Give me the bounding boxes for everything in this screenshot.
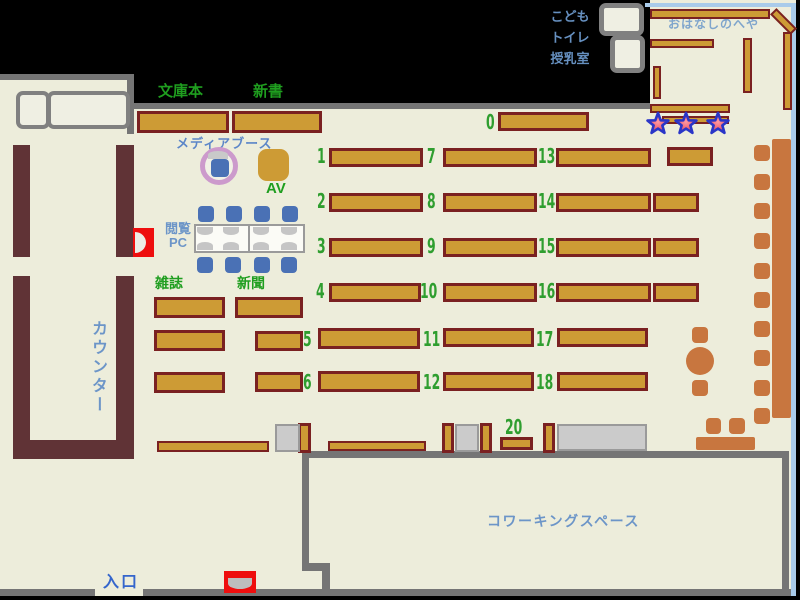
counter-right-upper: [116, 145, 134, 257]
shelf-number-17: 17: [536, 329, 553, 349]
bookshelf-17: [557, 328, 648, 347]
end-shelf: [543, 423, 555, 453]
pc-monitor: [223, 242, 239, 250]
bookshelf-11: [443, 328, 534, 347]
shelf-number-13: 13: [538, 146, 555, 166]
bookshelf-14: [556, 193, 651, 212]
study-table: [275, 424, 300, 452]
bookshelf-6: [318, 371, 420, 392]
pc-chair: [198, 206, 214, 222]
newspapers-label: 新聞: [237, 276, 265, 291]
bookshelf-13: [556, 148, 651, 167]
wall-seat: [754, 145, 770, 161]
bookshelf-16b: [653, 283, 699, 302]
shelf-number-20: 20: [505, 417, 522, 437]
wall-seat: [754, 292, 770, 308]
study-table: [455, 424, 479, 452]
newspaper-shelf: [235, 297, 303, 318]
shelf-number-2: 2: [317, 191, 326, 211]
wall-seat: [754, 203, 770, 219]
shelf-number-6: 6: [303, 372, 312, 392]
bookshelf-10: [443, 283, 537, 302]
magazine-shelf: [154, 372, 225, 393]
library-floor-map: こども トイレ 授乳室 カウンター 文庫本 新書 メディアブース AV 閲覧 P…: [0, 0, 800, 600]
shelf-number-16: 16: [538, 281, 555, 301]
pc-monitor: [281, 227, 297, 235]
bookshelf-9: [443, 238, 537, 257]
counter-label: カウンター: [85, 320, 109, 415]
round-table: [686, 347, 714, 375]
bookshelf-12: [443, 372, 534, 391]
round-table-seat: [692, 380, 708, 396]
bookshelf-4: [329, 283, 421, 302]
bookshelf-20: [500, 437, 533, 450]
coworking-label: コワーキングスペース: [487, 511, 640, 531]
bookshelf-1: [329, 148, 423, 167]
book-return-slot: [133, 228, 154, 257]
service-desk-right: [47, 91, 130, 129]
browsing-pc-line1: 閲覧: [163, 222, 193, 236]
wall-seat: [754, 380, 770, 396]
gate-sensor-window: [228, 578, 252, 589]
wall-seat: [754, 174, 770, 190]
media-booth-chair: [211, 159, 229, 177]
pc-table-divider: [248, 226, 250, 251]
shelf-number-12: 12: [423, 372, 440, 392]
magazine-shelf: [154, 297, 225, 318]
magazines-label: 雑誌: [155, 276, 183, 291]
bookshelf-3: [329, 238, 423, 257]
black-area-top-left: [0, 0, 133, 74]
window-bench: [772, 139, 791, 418]
bookshelf-paperbacks: [137, 111, 229, 133]
bookshelf-new-books: [232, 111, 322, 133]
toilet-room-box-2: [610, 35, 645, 73]
bookshelf-2: [329, 193, 423, 212]
pc-chair: [254, 257, 270, 273]
counter-right-lower: [116, 276, 134, 440]
room-shelf: [650, 39, 714, 48]
room-shelf: [650, 9, 770, 19]
shelf-number-7: 7: [427, 146, 436, 166]
pc-chair: [225, 257, 241, 273]
pc-chair: [282, 206, 298, 222]
pc-chair: [197, 257, 213, 273]
wall-seat: [754, 321, 770, 337]
shelf-number-8: 8: [427, 191, 436, 211]
wall-bottom-left-of-entrance: [0, 589, 95, 596]
counter-bottom: [13, 440, 134, 459]
bookshelf-5: [318, 328, 420, 349]
shelf-number-9: 9: [427, 236, 436, 256]
corner-seat: [706, 418, 721, 434]
counter-left-lower: [13, 276, 30, 459]
wall-coworking-right: [782, 451, 789, 596]
pc-monitor: [253, 242, 269, 250]
pc-chair: [254, 206, 270, 222]
bookshelf-15: [556, 238, 651, 257]
magazine-shelf: [154, 330, 225, 351]
shelf-number-10: 10: [420, 281, 437, 301]
wall-seat: [754, 350, 770, 366]
wall-coworking-left: [302, 451, 309, 570]
bookshelf-16: [556, 283, 651, 302]
room-shelf: [743, 38, 752, 93]
av-booth: [258, 149, 289, 181]
bookshelf-14b: [653, 193, 699, 212]
service-desk-left: [16, 91, 50, 129]
end-shelf: [480, 423, 492, 453]
room-shelf: [653, 66, 661, 99]
shelf-number-14: 14: [538, 191, 555, 211]
bookshelf-13b: [667, 147, 713, 166]
study-table-large: [557, 424, 647, 451]
round-table-seat: [692, 327, 708, 343]
toilet-label: トイレ: [546, 27, 594, 48]
shelf-number-4: 4: [316, 281, 325, 301]
bookshelf-18: [557, 372, 648, 391]
entrance-gate-sensor: [224, 571, 256, 593]
kids-toilet-nursing-label: こども トイレ 授乳室: [546, 6, 594, 69]
pc-chair: [281, 257, 297, 273]
browsing-pc-line2: PC: [163, 236, 193, 250]
pc-monitor: [223, 227, 239, 235]
toilet-room-box-1: [599, 3, 644, 36]
bookshelf-8: [443, 193, 537, 212]
shelf-number-18: 18: [536, 372, 553, 392]
shelf-number-15: 15: [538, 236, 555, 256]
pc-monitor: [281, 242, 297, 250]
wall-top-middle-horizontal: [127, 103, 650, 109]
entrance-label: 入口: [103, 568, 139, 592]
bookshelf-7: [443, 148, 537, 167]
bookshelf-15b: [653, 238, 699, 257]
pc-monitor: [197, 242, 213, 250]
star-icons: [644, 110, 732, 138]
shelf-number-5: 5: [303, 329, 312, 349]
shelf-number-3: 3: [317, 236, 326, 256]
bookshelf-0: [498, 112, 589, 131]
pc-monitor: [253, 227, 269, 235]
kids-label: こども: [546, 6, 594, 27]
shelf-number-11: 11: [423, 329, 440, 349]
end-shelf: [442, 423, 454, 453]
newspaper-shelf: [255, 331, 303, 351]
pc-monitor: [197, 227, 213, 235]
media-booth-seat-back: [208, 151, 228, 159]
browsing-pc-label: 閲覧 PC: [163, 222, 193, 250]
low-shelf: [157, 441, 269, 452]
nursing-label: 授乳室: [546, 48, 594, 69]
newspaper-shelf: [255, 372, 303, 392]
counter-left-upper: [13, 145, 30, 257]
wall-seat: [754, 263, 770, 279]
shelf-number-1: 1: [317, 146, 326, 166]
new-books-label: 新書: [253, 84, 283, 99]
wall-seat: [754, 408, 770, 424]
paperbacks-label: 文庫本: [158, 84, 203, 99]
corner-seat: [729, 418, 745, 434]
shelf-number-0: 0: [486, 112, 495, 132]
av-label: AV: [266, 181, 286, 196]
wall-seat: [754, 233, 770, 249]
low-shelf: [328, 441, 426, 451]
room-shelf: [783, 32, 792, 110]
wall-top-left-horizontal: [0, 74, 134, 80]
corner-bench: [696, 437, 755, 450]
wall-blue-top: [645, 3, 796, 7]
return-slot-opening: [135, 232, 146, 253]
pc-chair: [226, 206, 242, 222]
